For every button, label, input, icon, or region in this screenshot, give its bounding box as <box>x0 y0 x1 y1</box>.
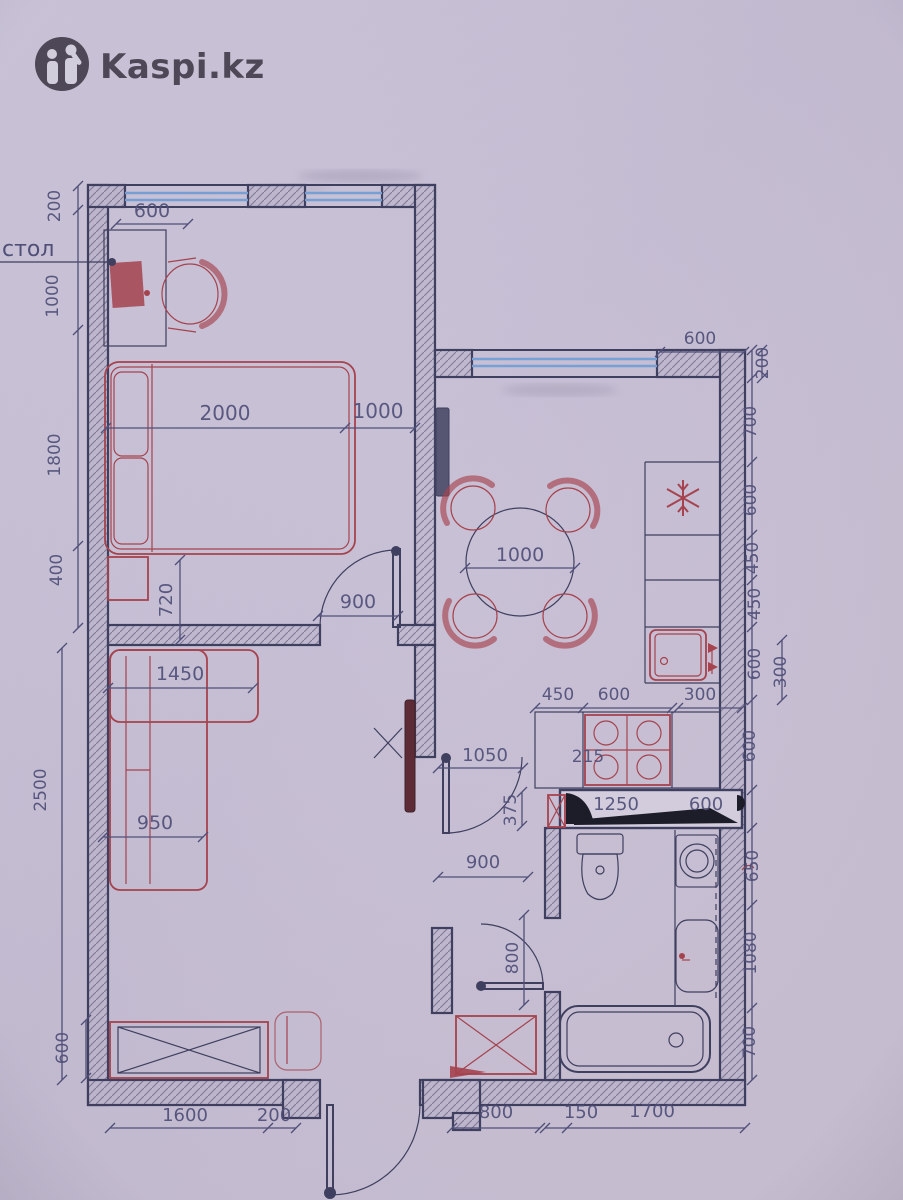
dimension-label: 600 <box>598 685 630 705</box>
dimension-label: 450 <box>745 588 765 620</box>
dimension-label: 600 <box>741 484 761 516</box>
dimension-label: 1000 <box>353 399 404 423</box>
dimension-label: 900 <box>340 591 376 613</box>
wall-bedroom-living <box>108 625 320 645</box>
wall-bathroom-left-lower <box>545 992 560 1080</box>
dimension-label: 2500 <box>31 768 51 811</box>
dimension-label: 150 <box>564 1102 598 1123</box>
dimension-label: 1600 <box>162 1105 208 1126</box>
dimension-label: 300 <box>771 656 791 688</box>
wall-bathroom-left-upper <box>545 828 560 918</box>
dimension-label: 1450 <box>156 663 204 685</box>
tv <box>405 700 415 812</box>
dimension-label: 700 <box>740 1026 760 1058</box>
dimension-label: 200 <box>257 1105 291 1126</box>
dimension-label: 800 <box>479 1102 513 1123</box>
dimension-label: 1000 <box>43 274 63 317</box>
wall-bottom-left <box>88 1080 305 1105</box>
radiator <box>436 408 449 496</box>
photographed-floor-plan: 2001000180040025006006002000100072090014… <box>0 0 903 1200</box>
dimension-label: 200 <box>45 190 65 222</box>
desk-callout-label: стол <box>2 237 54 262</box>
wall-right <box>720 350 745 1105</box>
dimension-label: 300 <box>684 685 716 705</box>
desk-monitor <box>110 261 145 308</box>
dimension-label: 600 <box>745 648 765 680</box>
wall-living-hall <box>415 645 435 757</box>
dimension-label: 650 <box>743 850 763 882</box>
dimension-label: 1800 <box>45 433 65 476</box>
dimension-label: 950 <box>137 812 173 834</box>
dimension-label: 800 <box>503 942 523 974</box>
dimension-label: 600 <box>53 1032 73 1064</box>
dimension-label: 200 <box>753 347 773 379</box>
dimension-label: 600 <box>684 329 716 349</box>
dimension-label: 450 <box>743 542 763 574</box>
dimension-label: 450 <box>542 685 574 705</box>
dimension-label: 600 <box>740 730 760 762</box>
dimension-label: 1000 <box>496 544 544 566</box>
dimension-label: 600 <box>689 794 723 815</box>
dimension-label: 700 <box>741 406 761 438</box>
dimension-label: 375 <box>501 794 521 826</box>
dimension-label: 215 <box>572 747 604 767</box>
dimension-label: 720 <box>156 583 177 617</box>
dimension-label: 400 <box>47 554 67 586</box>
dimension-label: 1080 <box>741 931 761 974</box>
dimension-label: 2000 <box>200 401 251 425</box>
dimension-label: 900 <box>466 852 500 873</box>
wall-bedroom-kitchen <box>415 185 435 625</box>
dimension-label: 1250 <box>593 794 639 815</box>
dimension-label: 1700 <box>629 1101 675 1122</box>
dimension-label: 1050 <box>462 745 508 766</box>
kaspi-logo-text: Kaspi.kz <box>100 47 265 87</box>
wall-hall-stub <box>432 928 452 1013</box>
floor-plan-svg: 2001000180040025006006002000100072090014… <box>0 0 903 1200</box>
dimension-label: 600 <box>134 200 170 222</box>
wall-left <box>88 185 108 1105</box>
